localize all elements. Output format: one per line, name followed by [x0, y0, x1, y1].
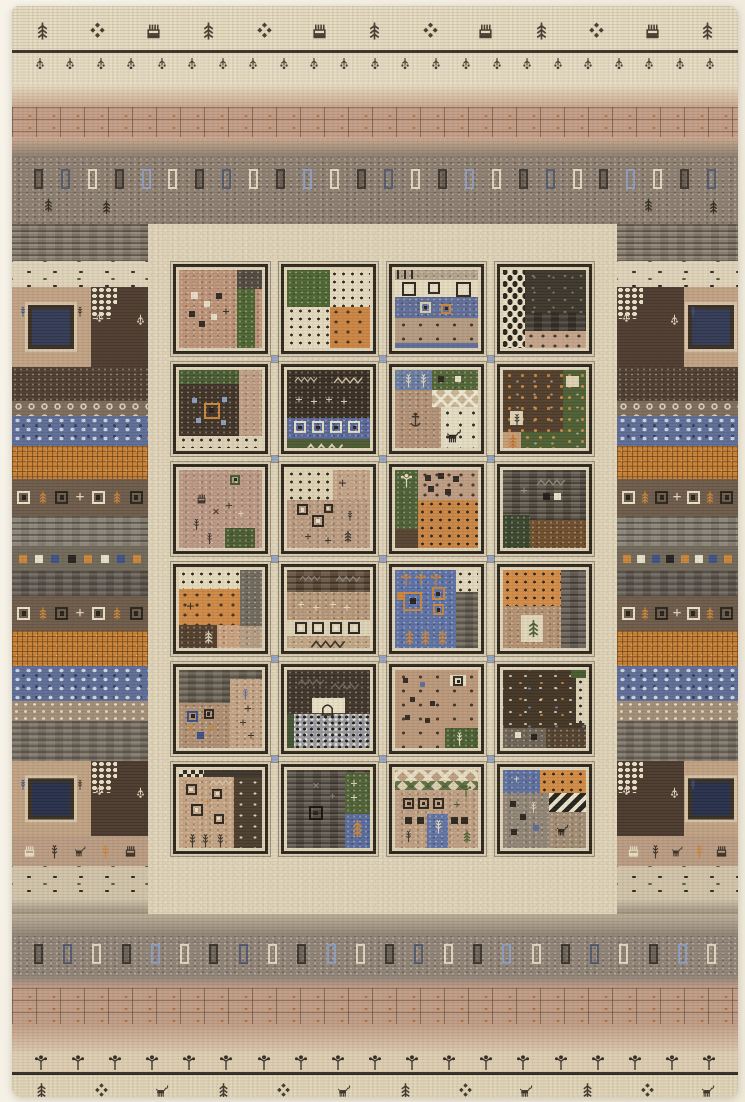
square-in-square-motif: [420, 302, 431, 313]
pattern-block: [503, 515, 530, 548]
gate-ornament: [330, 169, 339, 189]
square-in-square-motif: [441, 304, 451, 314]
wave-motif: [297, 678, 325, 687]
square-motif: [510, 801, 516, 807]
blue-intersection-dot: [488, 456, 494, 462]
square-motif: [189, 311, 195, 317]
flower-motif: [145, 1053, 159, 1071]
accent-square: [51, 555, 59, 563]
stripe-band: [617, 261, 738, 287]
square-in-square-motif: [212, 789, 222, 799]
square-field: [503, 270, 586, 348]
tree-motif: [435, 628, 450, 647]
pattern-block: [330, 270, 370, 307]
patchwork-square-r4c3: [389, 564, 484, 654]
patchwork-square-r5c2: [281, 664, 376, 754]
wave-motif: [294, 376, 318, 384]
pattern-block: [239, 370, 262, 436]
tassel-motif: [552, 57, 564, 73]
tassel-motif: [278, 57, 290, 73]
tassel-motif: [674, 57, 686, 73]
rug: [12, 6, 738, 1097]
square-motif: [455, 376, 461, 382]
rug-right-stripe-panel: [617, 224, 738, 914]
goat-motif: [701, 1081, 716, 1097]
stripe-band: [12, 1024, 738, 1052]
tassel-motif: [521, 57, 533, 73]
square-in-square-motif: [418, 798, 429, 809]
tassel-motif: [582, 57, 594, 73]
flower-motif: [368, 1053, 382, 1071]
wave-motif: [333, 376, 363, 386]
tree-motif: [402, 628, 417, 647]
plus-motif: [520, 486, 528, 496]
white-square-cluster: [617, 287, 643, 305]
stripe-band: [617, 446, 738, 479]
pattern-block: [530, 520, 586, 548]
plant-motif: [191, 517, 202, 531]
stripe-band: [617, 631, 738, 666]
square-in-square-motif: [622, 607, 635, 620]
square-in-square-motif: [403, 798, 414, 809]
square-in-square-motif: [402, 282, 416, 296]
accent-square: [666, 555, 674, 563]
tree-motif: [34, 20, 51, 42]
square-motif: [204, 301, 210, 307]
gate-ornament: [276, 169, 285, 189]
square-medallion: [28, 778, 74, 819]
gate-ornament: [249, 169, 258, 189]
stripe-band: [12, 1052, 738, 1075]
tassel-motif: [613, 57, 625, 73]
patchwork-square-r2c4: [497, 364, 592, 454]
square-motif: [221, 420, 226, 425]
patchwork-square-r5c4: [497, 664, 592, 754]
square-motif-row: [622, 600, 733, 627]
stripe-band: [12, 446, 148, 479]
tassel-motif: [94, 784, 105, 798]
white-square-cluster: [91, 287, 117, 305]
plus-motif: [350, 793, 358, 803]
square-motif: [211, 314, 217, 320]
accent-square-row: [623, 551, 732, 566]
square-field: [179, 370, 262, 448]
diamond4-motif: [588, 20, 605, 42]
tree-motif: [704, 490, 716, 505]
tassel-motif: [34, 57, 46, 73]
comb-motif: [124, 843, 137, 859]
square-motif: [420, 682, 425, 687]
stripe-band: [12, 224, 148, 261]
plus-motif: [204, 798, 211, 807]
plant-motif: [18, 305, 28, 318]
accent-square: [133, 555, 141, 563]
tree-motif: [533, 20, 550, 42]
tree-motif: [200, 20, 217, 42]
square-motif: [428, 486, 434, 492]
ornament-row: [34, 169, 716, 195]
gate-ornament: [384, 169, 393, 189]
rug-middle: [12, 224, 738, 914]
plant-motif: [75, 778, 85, 791]
square-in-square-motif: [330, 421, 342, 433]
square-motif-row: [17, 600, 142, 627]
pattern-block: [395, 529, 418, 548]
tassel-motif: [643, 57, 655, 73]
diamond4-motif: [640, 1081, 655, 1097]
square-in-square-motif: [432, 587, 445, 600]
stripe-band: [12, 107, 738, 137]
pattern-block: [240, 570, 262, 626]
plant-motif: [417, 372, 430, 388]
plant-motif: [240, 687, 251, 701]
stripe-band: [617, 516, 738, 546]
square-field: [395, 370, 478, 448]
diamond4-motif: [458, 1081, 473, 1097]
tassel-motif: [135, 314, 146, 328]
plus-motif: [297, 600, 305, 610]
pattern-block: [503, 770, 540, 793]
plant-motif: [186, 832, 199, 848]
gate-ornament: [180, 944, 189, 964]
accent-square: [681, 555, 689, 563]
stripe-band: [617, 287, 738, 367]
square-motif-row: [17, 483, 142, 512]
plus-motif: [340, 397, 348, 407]
patchwork-grid: [173, 264, 592, 854]
plant-motif: [345, 509, 355, 522]
pattern-block: [287, 307, 330, 348]
square-field: [287, 770, 370, 848]
tassel-motif: [247, 57, 259, 73]
gate-ornament: [303, 169, 312, 189]
flower-motif: [331, 1053, 345, 1071]
stripe-band: [617, 666, 738, 701]
square-motif: [451, 817, 458, 824]
flower-motif: [702, 1053, 716, 1071]
pattern-block: [237, 270, 262, 289]
gate-ornament: [561, 944, 570, 964]
square-motif: [520, 814, 526, 820]
pattern-block: [179, 770, 204, 777]
comb-motif: [145, 20, 162, 42]
medallion-field: [684, 287, 738, 367]
pattern-block: [179, 436, 262, 448]
square-in-square-motif: [17, 491, 30, 504]
tassel-motif: [95, 57, 107, 73]
blue-intersection-dot: [272, 356, 278, 362]
pattern-block: [234, 777, 262, 848]
pattern-block: [179, 370, 239, 384]
plus-motif: [75, 607, 85, 620]
square-field: [287, 570, 370, 648]
white-square-cluster: [91, 761, 117, 779]
tree-motif: [111, 490, 123, 505]
medallion-field: [12, 761, 91, 836]
patchwork-square-r1c2: [281, 264, 376, 354]
comb-motif: [715, 843, 728, 859]
pattern-block: [395, 318, 478, 343]
patchwork-square-r3c2: [281, 464, 376, 554]
gate-ornament: [619, 944, 628, 964]
gate-ornament: [356, 944, 365, 964]
flower-motif: [442, 1053, 456, 1071]
pattern-block: [566, 376, 579, 387]
plus-motif: [312, 603, 320, 613]
gate-ornament: [151, 944, 160, 964]
animal-motif-row: [627, 840, 729, 862]
cluster-field: [91, 287, 148, 367]
pattern-block: [521, 432, 563, 448]
square-in-square-motif: [453, 676, 463, 686]
plus-motif: [225, 501, 233, 511]
square-motif: [410, 697, 415, 702]
gate-ornament: [222, 169, 231, 189]
flower-motif: [400, 572, 412, 587]
square-motif: [461, 817, 468, 824]
square-motif: [191, 292, 198, 299]
blue-intersection-dot: [272, 656, 278, 662]
stripe-band: [12, 401, 148, 416]
square-in-square-motif: [403, 592, 422, 611]
pattern-block: [217, 625, 240, 648]
square-motif: [197, 732, 204, 739]
accent-square: [35, 555, 43, 563]
accent-square: [68, 555, 76, 563]
blue-intersection-dot: [488, 756, 494, 762]
stripe-band: [12, 367, 148, 401]
accent-square: [652, 555, 660, 563]
gate-ornament: [649, 944, 658, 964]
stripe-band: [12, 6, 738, 50]
plant-motif: [18, 778, 28, 791]
accent-square: [101, 555, 109, 563]
pattern-block: [204, 770, 262, 777]
pattern-block: [549, 793, 586, 812]
rug-left-stripe-panel: [12, 224, 148, 914]
gate-ornament: [195, 169, 204, 189]
square-in-square-motif: [204, 403, 220, 419]
tassel-motif: [64, 57, 76, 73]
square-in-square-motif: [622, 491, 635, 504]
motif-row: [34, 1053, 716, 1071]
pattern-block: [540, 770, 586, 793]
wave-motif: [330, 682, 360, 692]
square-field: [395, 270, 478, 348]
tree-motif: [707, 199, 720, 215]
square-in-square-motif: [655, 607, 668, 620]
plus-motif: [338, 478, 347, 489]
anchor-motif: [408, 411, 423, 430]
square-field: [395, 770, 478, 848]
patchwork-square-r3c1: [173, 464, 268, 554]
stripe-band: [617, 571, 738, 596]
stripe-band: [617, 546, 738, 571]
pattern-block: [561, 570, 586, 648]
patchwork-square-r2c3: [389, 364, 484, 454]
pattern-block: [503, 270, 525, 348]
square-in-square-motif: [55, 607, 68, 620]
gate-ornament: [115, 169, 124, 189]
square-field: [287, 470, 370, 548]
stripe-band: [12, 157, 738, 224]
tassel-motif: [621, 784, 632, 798]
accent-square: [117, 555, 125, 563]
square-in-square-motif: [295, 622, 307, 634]
diamond4-motif: [94, 1081, 109, 1097]
square-motif: [196, 418, 201, 423]
tassel-motif: [94, 311, 105, 325]
pattern-block: [432, 390, 478, 407]
comb-motif: [23, 843, 36, 859]
pattern-block: [237, 289, 255, 348]
square-field: [179, 270, 262, 348]
square-motif: [531, 734, 537, 740]
patchwork-square-r3c3: [389, 464, 484, 554]
gate-ornament: [438, 169, 447, 189]
blue-intersection-dot: [380, 356, 386, 362]
square-motif: [222, 397, 227, 402]
gate-ornament: [707, 944, 716, 964]
x-motif: [207, 723, 216, 734]
plus-motif: [75, 491, 85, 504]
stripe-band: [12, 83, 738, 107]
tree-motif: [37, 606, 49, 621]
cluster-field: [617, 761, 684, 836]
stripe-band: [12, 761, 148, 836]
stripe-band: [12, 261, 148, 287]
pattern-block: [225, 528, 255, 548]
pattern-block: [395, 770, 478, 781]
stripe-band: [12, 721, 148, 761]
plant-motif: [688, 778, 698, 791]
flower-motif: [591, 1053, 605, 1071]
square-motif: [438, 473, 444, 479]
tree-motif: [342, 529, 354, 544]
tree-motif: [506, 433, 520, 448]
comb-motif: [196, 492, 207, 506]
tree-motif: [216, 1081, 231, 1097]
goat-motif: [155, 1081, 170, 1097]
accent-square: [724, 555, 732, 563]
flower-motif: [516, 1053, 530, 1071]
comb-motif: [644, 20, 661, 42]
plus-motif: [672, 491, 682, 504]
diamond4-motif: [422, 20, 439, 42]
pattern-block: [287, 714, 294, 748]
tree-motif: [202, 629, 215, 645]
comb-motif: [477, 20, 494, 42]
flower-motif: [415, 572, 427, 587]
flower-motif: [554, 1053, 568, 1071]
plus-motif: [329, 600, 337, 610]
plant-motif: [727, 305, 737, 318]
tree-motif: [366, 20, 383, 42]
square-field: [503, 770, 586, 848]
square-in-square-motif: [187, 711, 198, 722]
plus-motif: [343, 603, 351, 613]
square-motif: [554, 493, 561, 500]
pattern-block: [395, 343, 478, 348]
tassel-motif: [621, 311, 632, 325]
square-motif: [403, 678, 408, 683]
square-in-square-motif: [230, 475, 240, 485]
stripe-band: [617, 701, 738, 721]
plant-motif: [199, 832, 212, 848]
stripe-band: [12, 914, 738, 936]
tassel-motif: [156, 57, 168, 73]
square-in-square-motif: [312, 515, 324, 527]
plant-motif: [48, 843, 61, 859]
gate-ornament: [63, 944, 72, 964]
stripe-band: [12, 571, 148, 596]
accent-square-row: [19, 551, 141, 566]
stripe-band: [12, 899, 148, 914]
accent-square: [709, 555, 717, 563]
square-motif: [199, 321, 205, 327]
square-in-square-motif: [92, 607, 105, 620]
gate-ornament: [209, 944, 218, 964]
tree-motif: [525, 618, 542, 639]
tassel-motif: [430, 57, 442, 73]
blue-intersection-dot: [380, 756, 386, 762]
pattern-block: [546, 728, 586, 748]
tassel-motif: [399, 57, 411, 73]
x-motif: [212, 507, 220, 517]
plant-motif: [649, 843, 662, 859]
square-motif: [453, 476, 459, 482]
pattern-block: [287, 270, 330, 307]
plant-motif: [511, 412, 523, 427]
gate-ornament: [653, 169, 662, 189]
patchwork-square-r6c3: [389, 764, 484, 854]
wave-motif: [304, 442, 344, 448]
square-in-square-motif: [191, 804, 203, 816]
gate-ornament: [546, 169, 555, 189]
rug-bottom-border: [12, 914, 738, 1097]
stripe-band: [12, 596, 148, 631]
stripe-band: [12, 416, 148, 446]
square-in-square-motif: [433, 604, 444, 615]
tree-motif: [461, 829, 473, 844]
comb-motif: [311, 20, 328, 42]
flower-motif: [430, 572, 442, 587]
rug-top-border: [12, 6, 738, 224]
tree-motif: [418, 628, 433, 647]
tassel-motif: [135, 787, 146, 801]
plant-motif: [453, 730, 466, 746]
stripe-band: [12, 287, 148, 367]
square-in-square-motif: [720, 491, 733, 504]
patchwork-square-r1c3: [389, 264, 484, 354]
square-in-square-motif: [297, 504, 308, 515]
tassel-motif: [369, 57, 381, 73]
pattern-block: [456, 570, 478, 592]
tassel-motif: [669, 314, 680, 328]
plus-motif: [672, 607, 682, 620]
plant-motif: [402, 372, 415, 388]
square-in-square-motif: [456, 282, 471, 297]
goat-motif: [337, 1081, 352, 1097]
stripe-band: [12, 866, 148, 899]
plus-motif: [350, 779, 358, 789]
square-motif: [397, 592, 405, 600]
motif-row: [34, 20, 716, 42]
blue-intersection-dot: [380, 656, 386, 662]
square-in-square-motif: [428, 282, 440, 294]
pattern-block: [294, 714, 370, 748]
flower-motif: [257, 1053, 271, 1071]
